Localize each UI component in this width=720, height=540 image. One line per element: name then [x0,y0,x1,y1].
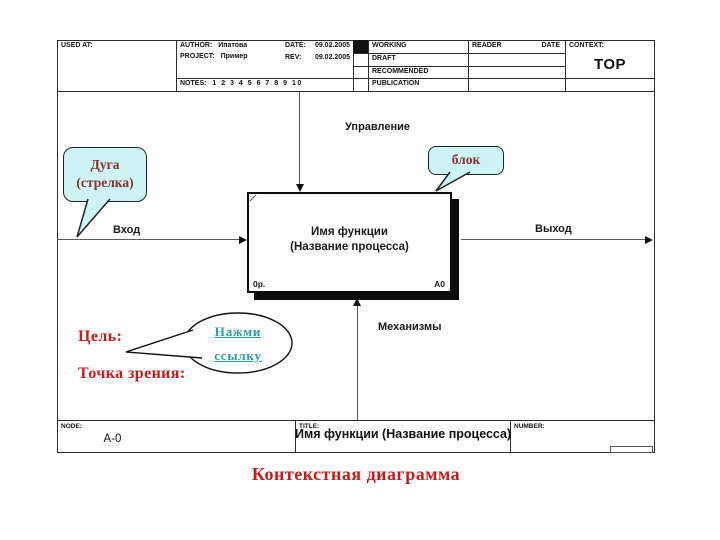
control-label: Управление [345,121,410,133]
notes-value: 1 2 3 4 5 6 7 8 9 10 [212,80,302,87]
used-at-label: USED AT: [61,42,93,49]
arc-callout-bubble: Дуга (стрелка) [63,147,147,202]
block-title-line2: (Название процесса) [249,240,450,255]
status-working: WORKING [372,42,407,49]
rev-value: 09.02.2005 [315,54,350,61]
block-title: Имя функции (Название процесса) [249,225,450,255]
block-title-line1: Имя функции [249,225,450,240]
header-row-line-2 [353,66,565,67]
date-value: 09.02.2005 [315,42,350,49]
corner-mark-icon [249,194,259,204]
project-row: PROJECT: Пример [180,53,248,60]
arc-callout-line2: (стрелка) [64,174,146,192]
notes-row: NOTES: 1 2 3 4 5 6 7 8 9 10 [180,80,303,87]
node-value: A-0 [85,433,140,445]
rev-row: REV: 09.02.2005 [285,54,350,61]
reader-label: READER [472,42,502,49]
title-value: Имя функции (Название процесса) [295,427,510,441]
date-col-label: DATE [500,42,560,49]
block-cost: 0р. [253,279,265,289]
header-bottom-line [57,91,655,92]
output-label: Выход [535,223,572,235]
author-label: AUTHOR: [180,42,212,49]
output-arrowhead-icon [645,236,653,244]
input-arrowhead-icon [239,236,247,244]
viewpoint-label: Точка зрения: [78,365,186,383]
control-arrowhead-icon [296,184,304,192]
number-corner-box [610,446,653,453]
header-col-line-1 [176,40,177,91]
notes-label: NOTES: [180,80,206,87]
function-block: Имя функции (Название процесса) 0р. A0 [247,192,452,293]
node-label: NODE: [61,423,82,430]
link-line1[interactable]: Нажми [215,324,261,339]
date-row: DATE: 09.02.2005 [285,42,350,49]
arc-callout-line1: Дуга [64,156,146,174]
context-label: CONTEXT: [569,42,604,49]
status-publication: PUBLICATION [372,80,419,87]
rev-label: REV: [285,54,301,61]
output-arrow [461,239,646,240]
link-line2[interactable]: ссылку [214,348,262,363]
header-row-line-1 [353,53,565,54]
number-label: NUMBER: [514,423,545,430]
block-callout-text: блок [452,152,481,167]
input-label: Вход [113,224,140,236]
block-node-code: A0 [434,279,445,289]
header-row-line-3 [176,78,655,79]
mechanism-label: Механизмы [378,321,442,333]
diagram-caption: Контекстная диаграмма [57,464,655,485]
date-label: DATE: [285,42,306,49]
control-arrow [299,92,300,189]
block-callout-bubble: блок [428,146,504,175]
click-link[interactable]: Нажми ссылку [183,320,293,368]
header-col-line-4 [468,40,469,91]
mechanism-arrow [357,306,358,420]
author-row: AUTHOR: Ипатова [180,42,247,49]
input-arrow [57,239,241,240]
footer-top-line [57,420,655,421]
context-value: TOP [565,56,655,73]
goal-label: Цель: [78,328,122,346]
header-col-line-3 [368,40,369,91]
project-label: PROJECT: [180,53,215,60]
idef0-slide: USED AT: AUTHOR: Ипатова PROJECT: Пример… [0,0,720,540]
project-value: Пример [221,53,248,60]
status-draft: DRAFT [372,55,396,62]
author-value: Ипатова [218,42,247,49]
status-recommended: RECOMMENDED [372,68,428,75]
working-checkbox-filled [353,40,368,53]
